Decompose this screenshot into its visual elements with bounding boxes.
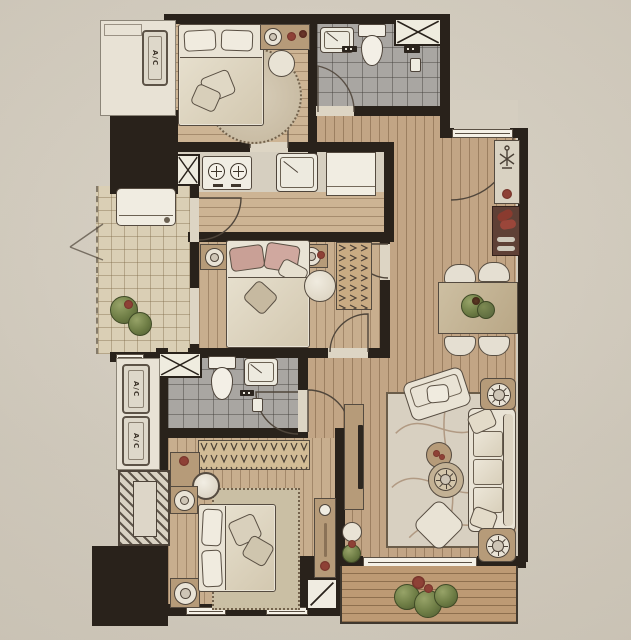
door-opening: [298, 390, 308, 432]
hall-stool: [342, 522, 362, 542]
entry-door-leaf: [452, 129, 513, 138]
burner: [208, 163, 225, 180]
structural-shaft: [118, 470, 170, 546]
flower-decor: [472, 297, 480, 305]
balcony-plant: [434, 584, 458, 608]
shower-bottle: [410, 58, 421, 72]
pillow: [228, 244, 265, 272]
ac-unit: A/C: [142, 30, 168, 86]
door-opening: [190, 288, 199, 344]
flower-decor: [287, 32, 296, 41]
bed-2: [226, 240, 310, 348]
decor-bowl: [319, 504, 331, 516]
pillow: [201, 509, 223, 547]
service-shaft: [394, 18, 442, 46]
compass-lamp: [487, 383, 511, 407]
kitchen-shaft: [176, 154, 200, 186]
washing-machine: [116, 188, 176, 226]
shoe: [499, 219, 516, 231]
television: [358, 425, 363, 489]
wardrobe: [336, 242, 372, 310]
toilet: [358, 24, 386, 66]
potted-plant: [128, 312, 152, 336]
flower-decor: [179, 456, 189, 466]
centerpiece-plant: [477, 301, 495, 319]
master-bed: [198, 504, 276, 592]
wardrobe: [198, 440, 310, 470]
bedroom-chair: [304, 270, 336, 302]
bed-1: [178, 24, 264, 126]
door-opening: [316, 106, 354, 116]
ac-unit: A/C: [122, 364, 150, 414]
pillow: [183, 29, 216, 52]
table-lamp: [264, 28, 282, 46]
wall: [156, 428, 308, 438]
balcony-flower: [424, 584, 433, 593]
refrigerator: [326, 152, 376, 196]
kitchen-sink: [276, 153, 318, 192]
washer-knob: [164, 217, 170, 223]
handle: [497, 246, 515, 251]
cooktop: [202, 156, 252, 190]
wall: [92, 546, 168, 626]
fixture-tag: [342, 46, 357, 52]
coat-stand-icon: [497, 145, 517, 171]
column-box: [306, 578, 338, 610]
nightstand: [170, 578, 200, 608]
bedroom-cabinet: [314, 498, 336, 578]
compass-lamp: [486, 534, 510, 558]
washbasin: [244, 358, 278, 386]
flower-decor: [320, 561, 330, 571]
pillow: [221, 29, 254, 51]
flower-decor: [502, 189, 512, 199]
service-shaft: [158, 352, 202, 378]
side-table: [480, 378, 516, 410]
door-opening: [380, 244, 390, 280]
nightstand: [200, 244, 228, 270]
pillow: [201, 550, 223, 588]
nightstand: [260, 24, 310, 50]
dining-chair: [478, 262, 510, 282]
handle: [497, 237, 515, 242]
balcony-shelf: [104, 24, 142, 36]
flower-decor: [124, 300, 133, 309]
toilet: [208, 356, 236, 400]
shower-head-icon: [404, 46, 420, 53]
coffee-table: [428, 462, 464, 498]
compass-rose: [434, 468, 457, 491]
knob: [213, 184, 223, 187]
flower-decor: [348, 540, 356, 548]
sofa: [468, 408, 516, 532]
nightstand: [170, 486, 198, 514]
tv-console: [344, 404, 364, 510]
bottle: [252, 398, 263, 412]
shoe-cabinet: [492, 206, 520, 256]
dining-chair: [444, 264, 476, 284]
dining-table: [438, 282, 518, 334]
door-opening: [328, 348, 368, 358]
outside-patch: [450, 100, 518, 130]
knob: [231, 184, 241, 187]
floor-plan-photo: A/C: [0, 0, 631, 640]
flower-decor: [299, 30, 307, 38]
wall: [384, 142, 394, 242]
side-table: [478, 528, 516, 562]
seat-cushion: [473, 459, 503, 485]
burner: [230, 163, 247, 180]
door-opening: [190, 198, 199, 242]
entry-console: [494, 140, 520, 204]
ac-unit: A/C: [122, 416, 150, 466]
armchair-pillow: [426, 384, 450, 404]
stool: [268, 50, 295, 77]
fixture-tag: [240, 390, 254, 396]
seat-cushion: [473, 431, 503, 457]
